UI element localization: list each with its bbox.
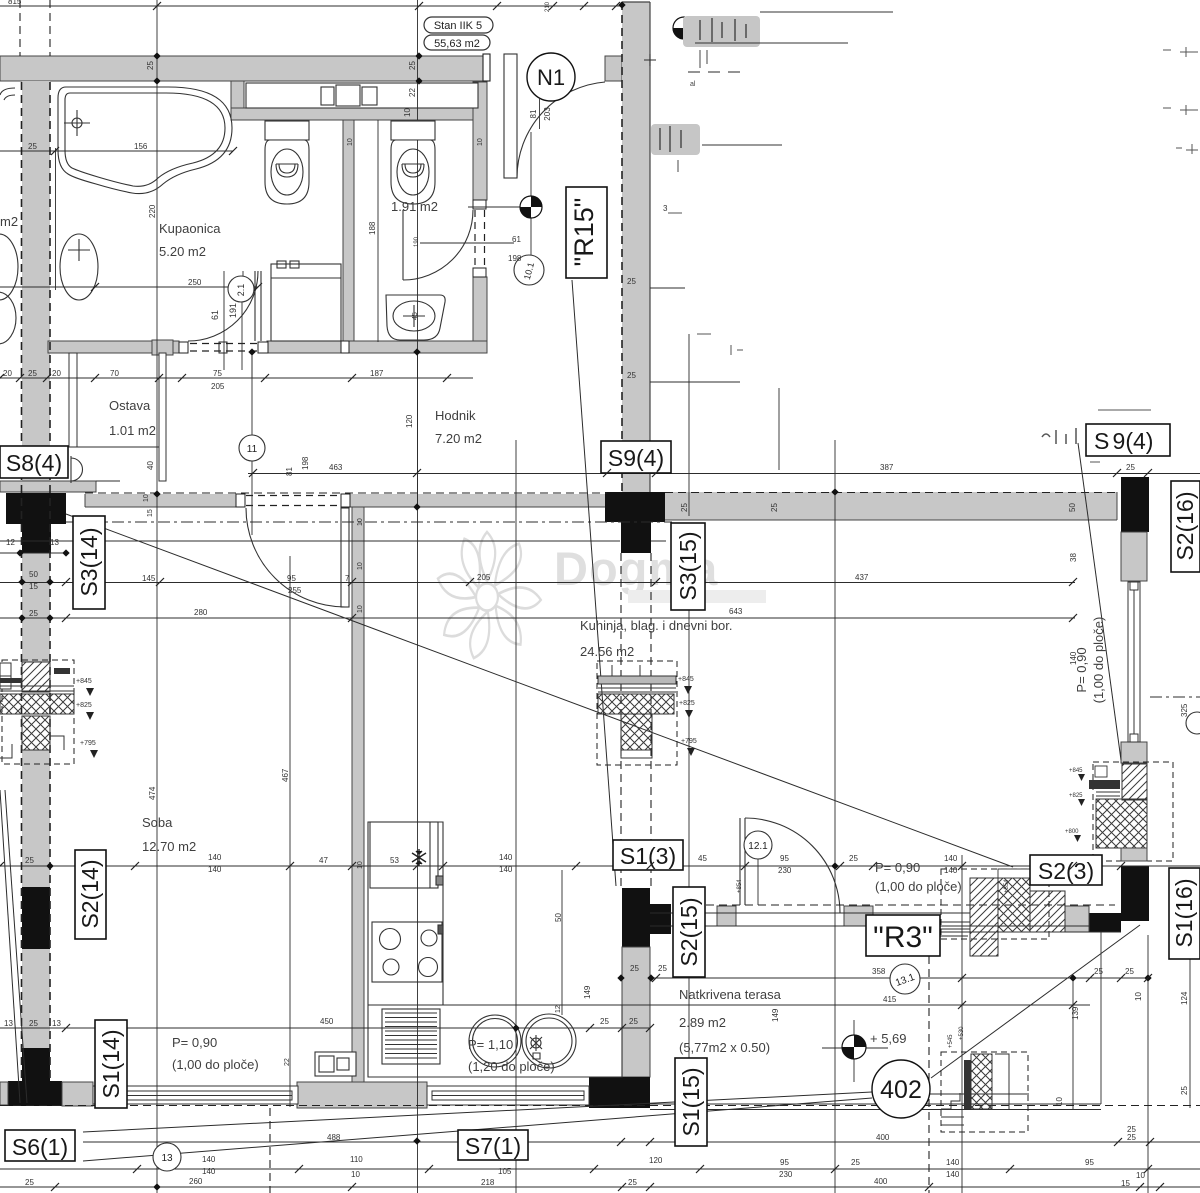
svg-text:(5,77m2 x 0.50): (5,77m2 x 0.50) — [679, 1040, 770, 1055]
svg-text:203: 203 — [543, 107, 552, 121]
svg-text:230: 230 — [778, 866, 792, 875]
svg-text:75: 75 — [213, 369, 222, 378]
svg-text:(1,20 do ploče): (1,20 do ploče) — [468, 1059, 555, 1074]
svg-text:25: 25 — [1127, 1125, 1136, 1134]
svg-text:Kupaonica: Kupaonica — [159, 221, 221, 236]
svg-text:Hodnik: Hodnik — [435, 408, 476, 423]
svg-text:140: 140 — [499, 853, 513, 862]
svg-text:S3(15): S3(15) — [675, 531, 701, 600]
svg-text:25: 25 — [29, 1019, 38, 1028]
svg-text:S8(4): S8(4) — [6, 450, 62, 476]
svg-text:25: 25 — [25, 1178, 34, 1187]
svg-text:105: 105 — [498, 1167, 512, 1176]
svg-text:25: 25 — [146, 61, 155, 70]
svg-text:95: 95 — [1085, 1158, 1094, 1167]
svg-text:12.1: 12.1 — [748, 841, 768, 852]
svg-text:400: 400 — [876, 1133, 890, 1142]
svg-text:218: 218 — [481, 1178, 495, 1187]
svg-text:13: 13 — [161, 1153, 173, 1164]
svg-text:10: 10 — [1055, 1097, 1064, 1106]
svg-text:P= 0,90: P= 0,90 — [172, 1035, 217, 1050]
svg-text:190: 190 — [414, 236, 420, 247]
svg-text:120: 120 — [649, 1156, 663, 1165]
svg-text:10: 10 — [357, 605, 364, 613]
svg-text:S2(3): S2(3) — [1038, 858, 1094, 884]
svg-text:81: 81 — [529, 109, 538, 118]
svg-text:9(4): 9(4) — [1113, 428, 1154, 454]
svg-text:140: 140 — [499, 865, 513, 874]
svg-text:25: 25 — [627, 371, 636, 380]
svg-text:+530: +530 — [959, 1026, 965, 1040]
svg-text:145: 145 — [142, 574, 156, 583]
svg-text:(1,00 do ploče): (1,00 do ploče) — [875, 879, 962, 894]
svg-text:139: 139 — [1071, 1006, 1080, 1020]
svg-text:149: 149 — [583, 985, 592, 999]
svg-text:140: 140 — [208, 853, 222, 862]
svg-text:140: 140 — [946, 1158, 960, 1167]
svg-text:95: 95 — [287, 574, 296, 583]
svg-text:10: 10 — [1134, 992, 1143, 1001]
svg-text:140: 140 — [1069, 651, 1078, 665]
svg-text:140: 140 — [208, 865, 222, 874]
svg-text:10: 10 — [357, 518, 364, 526]
svg-text:"R15": "R15" — [569, 198, 599, 267]
svg-text:+795: +795 — [681, 738, 697, 745]
svg-text:45: 45 — [412, 312, 419, 320]
svg-text:+845: +845 — [1069, 768, 1083, 774]
svg-text:463: 463 — [329, 463, 343, 472]
svg-text:140: 140 — [946, 1170, 960, 1179]
svg-text:400: 400 — [874, 1177, 888, 1186]
svg-text:643: 643 — [729, 607, 743, 616]
svg-text:230: 230 — [779, 1170, 793, 1179]
svg-text:45: 45 — [698, 854, 707, 863]
svg-text:81: 81 — [285, 467, 294, 476]
svg-text:+854: +854 — [1004, 879, 1010, 893]
svg-text:25: 25 — [29, 609, 38, 618]
svg-text:40: 40 — [146, 461, 155, 470]
svg-text:+845: +845 — [678, 676, 694, 683]
svg-text:25: 25 — [600, 1017, 609, 1026]
svg-text:25: 25 — [851, 1158, 860, 1167]
svg-text:(1,00 do ploče): (1,00 do ploče) — [1091, 617, 1106, 704]
svg-text:+ 5,69: + 5,69 — [870, 1031, 907, 1046]
svg-text:P= 0,90: P= 0,90 — [875, 860, 920, 875]
svg-text:12.70 m2: 12.70 m2 — [142, 839, 196, 854]
svg-text:280: 280 — [194, 608, 208, 617]
svg-text:15: 15 — [29, 582, 38, 591]
svg-text:205: 205 — [477, 573, 491, 582]
svg-text:25: 25 — [770, 503, 779, 512]
svg-text:50: 50 — [29, 570, 38, 579]
svg-text:325: 325 — [1180, 703, 1189, 717]
svg-text:95: 95 — [780, 1158, 789, 1167]
svg-text:50: 50 — [554, 913, 563, 922]
svg-text:25: 25 — [408, 61, 417, 70]
svg-text:25: 25 — [28, 142, 37, 151]
svg-text:10: 10 — [403, 108, 412, 117]
svg-text:140: 140 — [944, 854, 958, 863]
svg-text:140: 140 — [202, 1155, 216, 1164]
svg-text:Stan IIK 5: Stan IIK 5 — [434, 20, 482, 32]
svg-text:S2(14): S2(14) — [77, 859, 103, 928]
svg-text:50: 50 — [1068, 503, 1077, 512]
svg-text:1.01 m2: 1.01 m2 — [109, 423, 156, 438]
svg-text:22: 22 — [284, 1058, 291, 1066]
svg-text:(1,00 do ploče): (1,00 do ploče) — [172, 1057, 259, 1072]
svg-text:474: 474 — [148, 786, 157, 800]
svg-text:140: 140 — [202, 1167, 216, 1176]
svg-text:S: S — [1094, 428, 1109, 454]
svg-text:124: 124 — [1180, 991, 1189, 1005]
svg-text:Natkrivena terasa: Natkrivena terasa — [679, 987, 782, 1002]
svg-text:S1(14): S1(14) — [98, 1029, 124, 1098]
svg-text:260: 260 — [189, 1177, 203, 1186]
svg-text:+845: +845 — [76, 678, 92, 685]
svg-text:22: 22 — [408, 88, 417, 97]
svg-text:m2: m2 — [0, 214, 18, 229]
svg-text:+545: +545 — [948, 1034, 954, 1048]
svg-text:437: 437 — [855, 573, 869, 582]
svg-text:70: 70 — [110, 369, 119, 378]
svg-text:12: 12 — [6, 538, 15, 547]
svg-text:S3(14): S3(14) — [76, 527, 102, 596]
svg-text:55,63 m2: 55,63 m2 — [434, 38, 480, 50]
svg-text:al: al — [690, 81, 696, 88]
svg-text:10: 10 — [351, 1170, 360, 1179]
svg-text:110: 110 — [350, 1155, 363, 1164]
svg-text:"R3": "R3" — [873, 921, 933, 954]
svg-text:7: 7 — [345, 574, 350, 583]
svg-text:Kuhinja, blag. i dnevni bor.: Kuhinja, blag. i dnevni bor. — [580, 618, 733, 633]
svg-text:467: 467 — [281, 768, 290, 782]
svg-text:25: 25 — [28, 369, 37, 378]
svg-text:+800: +800 — [1065, 829, 1079, 835]
svg-text:S2(16): S2(16) — [1172, 491, 1198, 560]
svg-text:N1: N1 — [537, 65, 565, 90]
svg-text:13: 13 — [50, 538, 59, 547]
svg-text:220: 220 — [148, 204, 157, 218]
svg-text:250: 250 — [188, 278, 202, 287]
svg-text:20: 20 — [3, 369, 12, 378]
svg-text:25: 25 — [628, 1178, 637, 1187]
svg-text:+825: +825 — [76, 702, 92, 709]
svg-text:1.91 m2: 1.91 m2 — [391, 199, 438, 214]
svg-text:198: 198 — [301, 456, 310, 470]
svg-text:S2(15): S2(15) — [676, 897, 702, 966]
svg-text:10: 10 — [143, 494, 150, 502]
svg-text:S1(15): S1(15) — [678, 1067, 704, 1136]
svg-text:53: 53 — [390, 856, 399, 865]
svg-text:25: 25 — [1094, 967, 1103, 976]
svg-text:+854: +854 — [737, 879, 743, 893]
svg-text:13: 13 — [4, 1019, 13, 1028]
svg-text:13: 13 — [52, 1019, 61, 1028]
svg-text:815: 815 — [8, 0, 22, 6]
svg-text:95: 95 — [780, 854, 789, 863]
svg-text:S1(3): S1(3) — [620, 843, 676, 869]
svg-text:188: 188 — [368, 221, 377, 235]
svg-text:149: 149 — [771, 1008, 780, 1022]
svg-text:25: 25 — [630, 964, 639, 973]
svg-text:10: 10 — [357, 562, 364, 570]
svg-text:10: 10 — [357, 861, 364, 869]
svg-text:5.20 m2: 5.20 m2 — [159, 244, 206, 259]
svg-text:S6(1): S6(1) — [12, 1134, 68, 1160]
svg-text:+825: +825 — [679, 700, 695, 707]
svg-text:15: 15 — [147, 509, 154, 517]
svg-text:210: 210 — [545, 1, 551, 12]
svg-text:2.1: 2.1 — [236, 284, 246, 297]
svg-text:358: 358 — [872, 967, 886, 976]
svg-text:P= 1,10: P= 1,10 — [468, 1037, 513, 1052]
svg-text:+825: +825 — [1069, 793, 1083, 799]
svg-text:24.56 m2: 24.56 m2 — [580, 644, 634, 659]
svg-text:10: 10 — [347, 138, 354, 146]
svg-text:25: 25 — [1126, 463, 1135, 472]
svg-text:S1(16): S1(16) — [1171, 878, 1197, 947]
svg-text:191: 191 — [228, 303, 238, 318]
svg-text:+795: +795 — [80, 740, 96, 747]
svg-text:387: 387 — [880, 463, 894, 472]
svg-text:402: 402 — [880, 1076, 922, 1104]
svg-text:205: 205 — [211, 382, 225, 391]
svg-text:450: 450 — [320, 1017, 334, 1026]
svg-text:25: 25 — [25, 856, 34, 865]
svg-text:25: 25 — [627, 277, 636, 286]
svg-text:25: 25 — [1127, 1133, 1136, 1142]
svg-text:2.89 m2: 2.89 m2 — [679, 1015, 726, 1030]
svg-text:12: 12 — [555, 1005, 562, 1013]
svg-text:61: 61 — [512, 235, 521, 244]
svg-text:120: 120 — [405, 414, 414, 428]
svg-text:187: 187 — [370, 369, 384, 378]
svg-text:25: 25 — [629, 1017, 638, 1026]
svg-text:11: 11 — [247, 444, 258, 455]
svg-text:488: 488 — [327, 1133, 341, 1142]
svg-text:140: 140 — [944, 866, 958, 875]
svg-text:25: 25 — [1125, 967, 1134, 976]
svg-text:7.20 m2: 7.20 m2 — [435, 431, 482, 446]
svg-text:61: 61 — [210, 310, 220, 320]
svg-text:255: 255 — [288, 586, 302, 595]
svg-text:415: 415 — [883, 995, 897, 1004]
svg-text:Ostava: Ostava — [109, 398, 151, 413]
svg-text:198: 198 — [508, 254, 522, 263]
svg-text:156: 156 — [134, 142, 148, 151]
svg-text:25: 25 — [1180, 1086, 1189, 1095]
svg-text:S9(4): S9(4) — [608, 445, 664, 471]
svg-text:15: 15 — [1121, 1179, 1130, 1188]
svg-text:25: 25 — [849, 854, 858, 863]
svg-text:S7(1): S7(1) — [465, 1133, 521, 1159]
svg-text:25: 25 — [680, 503, 689, 512]
svg-text:Soba: Soba — [142, 815, 173, 830]
svg-text:25: 25 — [658, 964, 667, 973]
svg-text:10: 10 — [477, 138, 484, 146]
svg-text:38: 38 — [1069, 553, 1078, 562]
svg-text:3: 3 — [663, 204, 668, 213]
svg-text:20: 20 — [52, 369, 61, 378]
svg-text:47: 47 — [319, 856, 328, 865]
